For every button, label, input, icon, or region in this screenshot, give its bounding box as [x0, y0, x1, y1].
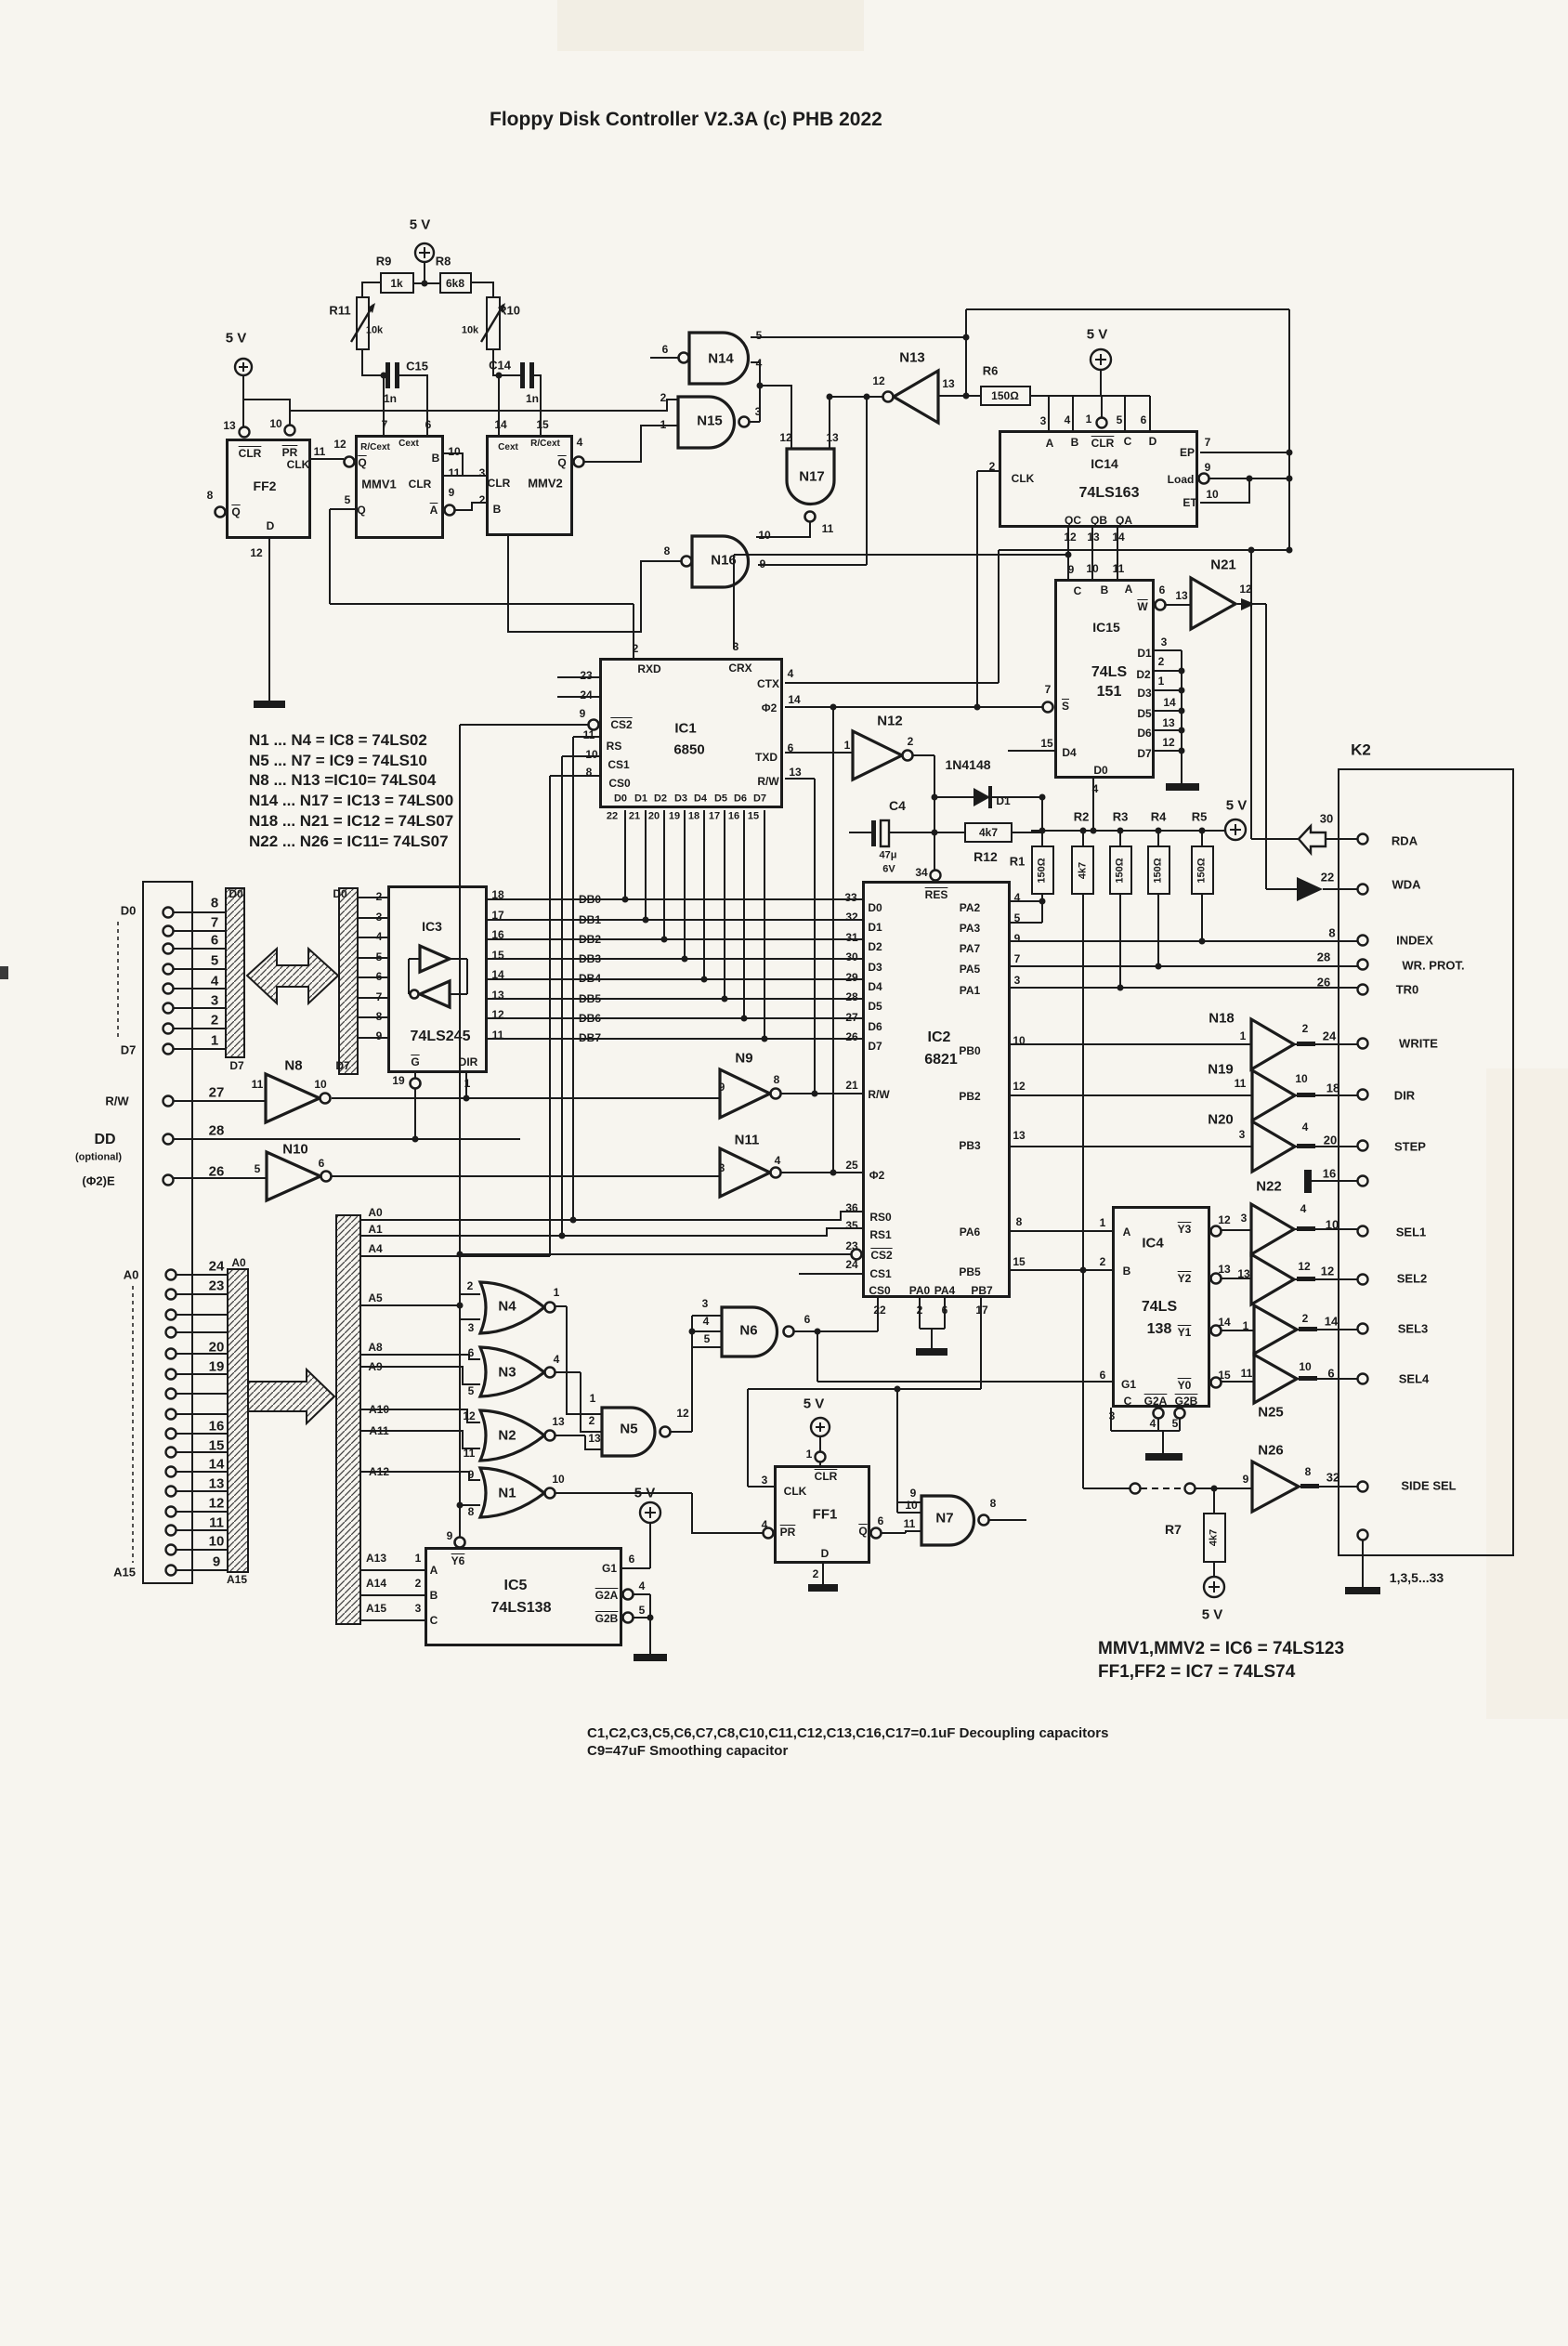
- label-1: 1: [1240, 1030, 1247, 1042]
- diode-d1: [973, 786, 992, 808]
- label-23: 23: [845, 1240, 857, 1252]
- label-qa: QA: [1116, 515, 1132, 526]
- label-32: 32: [845, 911, 857, 923]
- label-3: 3: [1241, 1212, 1248, 1224]
- label-c4: C4: [889, 799, 906, 812]
- label-10: 10: [1295, 1073, 1307, 1084]
- schematic-page: Floppy Disk Controller V2.3A (c) PHB 202…: [0, 0, 1568, 2346]
- label-23: 23: [580, 670, 592, 681]
- label-b: B: [493, 504, 502, 515]
- label-21: 21: [845, 1080, 857, 1091]
- label-n21: N21: [1210, 558, 1236, 572]
- label-pa7: PA7: [960, 943, 980, 954]
- label-d3: D3: [1137, 688, 1151, 699]
- label-n25: N25: [1258, 1406, 1284, 1420]
- label-13: 13: [209, 1477, 225, 1491]
- label-14: 14: [491, 969, 503, 980]
- label-13: 13: [826, 432, 838, 443]
- label-rs: RS: [607, 740, 622, 752]
- label-3: 3: [1161, 636, 1168, 648]
- label-8: 8: [586, 767, 593, 778]
- label-n14: N14: [708, 352, 734, 366]
- label-d0: D0: [121, 905, 137, 917]
- label-n3: N3: [498, 1366, 516, 1380]
- label-ic4: IC4: [1142, 1237, 1163, 1251]
- label-32: 32: [1326, 1472, 1339, 1484]
- label-n17: N17: [799, 470, 825, 484]
- label-d4: D4: [694, 794, 707, 805]
- label-n1: N1: [498, 1487, 516, 1501]
- label-150ω: 150Ω: [1197, 858, 1208, 883]
- label-28: 28: [845, 991, 857, 1003]
- label-5-v: 5 V: [410, 218, 431, 232]
- label-4: 4: [639, 1580, 646, 1592]
- label-n7: N7: [935, 1512, 953, 1526]
- label-6: 6: [468, 1347, 475, 1358]
- label-4: 4: [1014, 892, 1021, 903]
- label-r2: R2: [1074, 811, 1090, 823]
- label-ic2: IC2: [928, 1030, 951, 1045]
- label-1: 1: [844, 740, 851, 751]
- label-11: 11: [1235, 1078, 1247, 1089]
- label-g2a: G2A: [595, 1590, 619, 1601]
- label-1: 1: [660, 419, 667, 430]
- label-8: 8: [207, 490, 214, 501]
- label-r11: R11: [329, 305, 350, 317]
- label-2: 2: [1302, 1023, 1309, 1034]
- label-pa1: PA1: [960, 985, 980, 996]
- label-8: 8: [774, 1074, 780, 1085]
- label-29: 29: [845, 972, 857, 983]
- label-150ω: 150Ω: [1116, 858, 1126, 883]
- label-5: 5: [345, 494, 351, 505]
- label-5-v: 5 V: [226, 332, 247, 346]
- label-2: 2: [989, 461, 996, 472]
- label-1: 1: [1100, 1217, 1106, 1228]
- label-10: 10: [269, 418, 281, 429]
- label-a1: A1: [368, 1224, 382, 1235]
- label-9: 9: [1068, 564, 1075, 575]
- label-4k7: 4k7: [979, 827, 998, 838]
- label-6: 6: [425, 419, 432, 430]
- label-19: 19: [669, 812, 680, 822]
- label-12: 12: [676, 1408, 688, 1419]
- label-13: 13: [552, 1416, 564, 1427]
- label-s: S: [1062, 701, 1069, 712]
- label-24: 24: [209, 1260, 225, 1274]
- label-9: 9: [468, 1469, 475, 1480]
- label-q: Q: [231, 506, 240, 518]
- label-ic15: IC15: [1092, 621, 1120, 634]
- label-c: C: [430, 1615, 438, 1626]
- label-d2: D2: [1136, 669, 1150, 680]
- label-sel4: SEL4: [1399, 1373, 1430, 1385]
- label-tr0: TR0: [1396, 984, 1419, 996]
- label-10k: 10k: [366, 326, 383, 336]
- label-25: 25: [845, 1160, 857, 1171]
- r11-pot-box: [356, 296, 370, 350]
- label-pa6: PA6: [960, 1226, 980, 1238]
- label-txd: TXD: [755, 752, 777, 763]
- label-pa5: PA5: [960, 963, 980, 975]
- label-8: 8: [990, 1498, 997, 1509]
- label-d5: D5: [868, 1001, 882, 1012]
- ic3-74ls245-box: [387, 885, 488, 1073]
- label-9: 9: [449, 487, 455, 498]
- label-pa2: PA2: [960, 902, 980, 913]
- label-3: 3: [479, 467, 486, 478]
- label-36: 36: [845, 1202, 857, 1213]
- label-14: 14: [1218, 1317, 1230, 1328]
- label-4: 4: [756, 358, 763, 369]
- label-rs1: RS1: [869, 1229, 891, 1240]
- label-4: 4: [1300, 1203, 1307, 1214]
- label-d3: D3: [674, 794, 687, 805]
- label-11: 11: [464, 1448, 476, 1459]
- label-74ls: 74LS: [1091, 665, 1127, 680]
- label-4: 4: [762, 1519, 768, 1530]
- label-a: A: [430, 1565, 438, 1576]
- gate-n12: [853, 731, 902, 780]
- label-pr: PR: [282, 447, 298, 458]
- label-74ls245: 74LS245: [411, 1029, 471, 1044]
- label-3: 3: [415, 1603, 422, 1614]
- label-1: 1: [806, 1448, 813, 1460]
- label-a11: A11: [369, 1425, 388, 1436]
- label-1: 1: [211, 1034, 218, 1048]
- label-ic14: IC14: [1091, 457, 1118, 470]
- label-11: 11: [822, 523, 834, 534]
- label-d6: D6: [1137, 727, 1151, 739]
- label-ctx: CTX: [757, 678, 779, 689]
- label-db6: DB6: [579, 1013, 601, 1024]
- label-n12: N12: [877, 714, 903, 728]
- label-9: 9: [1014, 933, 1021, 944]
- label-150ω: 150Ω: [1154, 858, 1164, 883]
- label-r3: R3: [1113, 811, 1129, 823]
- label-2: 2: [467, 1280, 474, 1291]
- label-cs0: CS0: [869, 1285, 890, 1296]
- label-18: 18: [491, 889, 503, 900]
- label-13: 13: [1162, 717, 1174, 728]
- label-a8: A8: [368, 1342, 382, 1353]
- label-22: 22: [1321, 872, 1334, 884]
- label-r-w: R/W: [105, 1095, 128, 1107]
- label-c15: C15: [406, 360, 428, 373]
- label-clr: CLR: [815, 1471, 838, 1482]
- label-d3: D3: [868, 962, 882, 973]
- label-4: 4: [703, 1316, 710, 1327]
- label-a: A: [430, 505, 438, 516]
- label-b: B: [1071, 437, 1079, 448]
- label-11: 11: [209, 1516, 224, 1530]
- label-3: 3: [1239, 1129, 1246, 1140]
- label-a5: A5: [368, 1292, 382, 1304]
- label-res: RES: [925, 889, 948, 900]
- label-n16: N16: [711, 554, 737, 568]
- label-9: 9: [213, 1555, 220, 1569]
- label-10: 10: [552, 1474, 564, 1485]
- label-9: 9: [376, 1030, 383, 1042]
- label-d4: D4: [868, 981, 882, 992]
- label-2: 2: [589, 1415, 595, 1426]
- label-7: 7: [1014, 953, 1021, 964]
- label-8: 8: [376, 1011, 383, 1022]
- label-g2b: G2B: [595, 1613, 619, 1624]
- label-13: 13: [1218, 1264, 1230, 1275]
- label-8: 8: [211, 897, 218, 911]
- label-1n: 1n: [526, 393, 539, 404]
- label-a: A: [1123, 1226, 1131, 1238]
- label-12: 12: [1162, 737, 1174, 748]
- label-pb3: PB3: [959, 1140, 980, 1151]
- label-74ls163: 74LS163: [1079, 486, 1140, 501]
- gate-n20: [1252, 1121, 1295, 1172]
- paper-stain: [557, 0, 864, 51]
- label-d5: D5: [714, 794, 727, 805]
- label-22: 22: [873, 1304, 885, 1316]
- label-10: 10: [905, 1500, 917, 1511]
- label-clk: CLK: [287, 459, 310, 470]
- label-4: 4: [376, 931, 383, 942]
- label-pb5: PB5: [959, 1266, 980, 1278]
- label-10: 10: [1013, 1035, 1025, 1046]
- label-13: 13: [1087, 531, 1099, 543]
- label-13: 13: [1237, 1268, 1249, 1279]
- label-3: 3: [468, 1322, 475, 1333]
- label-d7: D7: [753, 794, 766, 805]
- label-10: 10: [585, 749, 597, 760]
- label-r-w: R/W: [868, 1089, 889, 1100]
- label-12: 12: [250, 547, 262, 558]
- label-ep: EP: [1180, 447, 1195, 458]
- label-d0: D0: [868, 902, 882, 913]
- label-6: 6: [878, 1515, 884, 1527]
- label-5: 5: [756, 330, 763, 341]
- label-rs0: RS0: [869, 1212, 891, 1223]
- label-11: 11: [583, 729, 595, 740]
- label-10: 10: [1206, 489, 1218, 500]
- label-11: 11: [314, 446, 326, 457]
- label-24: 24: [1323, 1030, 1336, 1042]
- label-10: 10: [1299, 1361, 1311, 1372]
- label-wda: WDA: [1392, 879, 1420, 891]
- label-12: 12: [1298, 1261, 1310, 1272]
- gate-n21: [1191, 578, 1235, 629]
- label-n18: N18: [1209, 1012, 1235, 1026]
- label-2: 2: [1158, 656, 1165, 667]
- label-d6: D6: [868, 1021, 882, 1032]
- label-c: C: [1074, 585, 1082, 596]
- label-d4: D4: [1062, 747, 1076, 758]
- label-9: 9: [760, 558, 766, 570]
- label-4k7: 4k7: [1078, 862, 1089, 879]
- label-5: 5: [639, 1605, 646, 1616]
- label-31: 31: [845, 932, 857, 943]
- label-5: 5: [1117, 414, 1123, 426]
- label-g1: G1: [602, 1563, 617, 1574]
- label-13: 13: [942, 378, 954, 389]
- label-d7: D7: [868, 1041, 882, 1052]
- label-a4: A4: [368, 1243, 382, 1254]
- label-6: 6: [942, 1304, 948, 1316]
- label-c14: C14: [489, 360, 511, 372]
- label-clk: CLK: [784, 1486, 807, 1497]
- label-2: 2: [1302, 1313, 1309, 1324]
- label-db3: DB3: [579, 953, 601, 964]
- label-4: 4: [788, 668, 794, 679]
- label-a15: A15: [227, 1574, 247, 1585]
- label-1n4148: 1N4148: [945, 758, 990, 771]
- label-12: 12: [872, 375, 884, 387]
- label-1k: 1k: [390, 278, 402, 289]
- gate-n19: [1252, 1070, 1295, 1121]
- label-b: B: [1101, 584, 1109, 596]
- label-d: D: [821, 1548, 830, 1559]
- label-n13: N13: [899, 351, 925, 365]
- label-30: 30: [845, 951, 857, 963]
- label-3: 3: [733, 641, 739, 652]
- label-r10: R10: [498, 305, 520, 317]
- label-74ls: 74LS: [1142, 1300, 1177, 1315]
- label-1: 1: [1243, 1320, 1249, 1331]
- gate-n22: [1251, 1204, 1294, 1254]
- label-4: 4: [577, 437, 583, 448]
- label-2: 2: [660, 392, 667, 403]
- label-a13: A13: [366, 1553, 386, 1564]
- label-6k8: 6k8: [446, 278, 464, 289]
- label-7: 7: [376, 991, 383, 1003]
- label-26: 26: [845, 1031, 857, 1042]
- label-b: B: [432, 452, 440, 464]
- label-db7: DB7: [579, 1032, 601, 1043]
- cpu-connector-box: [142, 881, 193, 1584]
- label-3: 3: [702, 1298, 709, 1309]
- label-10: 10: [1086, 563, 1098, 574]
- label-mmv2: MMV2: [528, 478, 563, 490]
- label-φ2: Φ2: [869, 1170, 885, 1181]
- label-w: W: [1137, 601, 1147, 612]
- label-17: 17: [975, 1304, 987, 1316]
- label-r4: R4: [1151, 811, 1167, 823]
- label-13: 13: [789, 767, 801, 778]
- label-9: 9: [1205, 462, 1211, 473]
- label-d5: D5: [1137, 708, 1151, 719]
- gate-n25: [1254, 1355, 1297, 1403]
- label-q: Q: [557, 457, 566, 468]
- label-a: A: [1125, 583, 1133, 595]
- label-12: 12: [333, 439, 346, 450]
- label-6: 6: [211, 934, 218, 948]
- data-bus: [226, 888, 358, 1074]
- label-3: 3: [719, 1162, 725, 1173]
- label-qc: QC: [1065, 515, 1081, 526]
- label-r9: R9: [376, 256, 392, 268]
- label-151: 151: [1097, 685, 1122, 700]
- label-6: 6: [376, 971, 383, 982]
- label-19: 19: [392, 1075, 404, 1086]
- label-27: 27: [209, 1086, 225, 1100]
- label-dir: DIR: [1394, 1090, 1415, 1102]
- label-9: 9: [447, 1530, 453, 1541]
- gate-n18: [1251, 1019, 1294, 1069]
- label-side-sel: SIDE SEL: [1401, 1480, 1456, 1492]
- label-n22: N22: [1256, 1180, 1282, 1194]
- label-6v: 6V: [882, 865, 895, 875]
- label-3: 3: [1109, 1410, 1116, 1422]
- label-k2: K2: [1351, 742, 1371, 758]
- label-q: Q: [358, 457, 366, 468]
- label-et: ET: [1183, 497, 1196, 508]
- label-y6: Y6: [451, 1555, 465, 1566]
- label-n19: N19: [1208, 1063, 1234, 1077]
- label-12: 12: [491, 1009, 503, 1020]
- label-pr: PR: [780, 1527, 796, 1538]
- label-g2a: G2A: [1144, 1396, 1168, 1407]
- label-17: 17: [709, 812, 720, 822]
- label-6: 6: [629, 1553, 635, 1565]
- label-ic5: IC5: [504, 1579, 528, 1593]
- label-cs2: CS2: [870, 1250, 892, 1261]
- label-6821: 6821: [924, 1053, 958, 1068]
- rda-arrow: [1299, 826, 1326, 853]
- label-a10: A10: [369, 1404, 389, 1415]
- label-5-v: 5 V: [1202, 1608, 1223, 1622]
- label-14: 14: [1163, 697, 1175, 708]
- label-10: 10: [448, 446, 460, 457]
- label-mmv1: MMV1: [361, 478, 397, 491]
- label-13: 13: [223, 420, 235, 431]
- label-26: 26: [209, 1165, 225, 1179]
- label-3: 3: [211, 994, 218, 1008]
- label--φ2-e: (Φ2)E: [82, 1175, 114, 1187]
- label-cs1: CS1: [869, 1268, 891, 1279]
- label-cs0: CS0: [608, 778, 630, 789]
- label-pa0: PA0: [909, 1285, 930, 1296]
- label-11: 11: [904, 1518, 916, 1529]
- label-24: 24: [845, 1259, 857, 1270]
- label-17: 17: [491, 910, 503, 921]
- label-7: 7: [382, 419, 388, 430]
- gate-n10: [267, 1152, 320, 1200]
- label-10k: 10k: [462, 326, 478, 336]
- label-15: 15: [491, 950, 503, 961]
- label-74ls138: 74LS138: [491, 1601, 552, 1616]
- label-20: 20: [209, 1341, 225, 1355]
- label-sel1: SEL1: [1396, 1226, 1427, 1239]
- label-2: 2: [633, 643, 639, 654]
- label-c: C: [1124, 1396, 1132, 1407]
- label-pb7: PB7: [971, 1285, 992, 1296]
- label-y0: Y0: [1178, 1380, 1192, 1391]
- label-1n: 1n: [384, 393, 397, 404]
- label-7: 7: [211, 916, 218, 930]
- label-pa4: PA4: [934, 1285, 955, 1296]
- label-db5: DB5: [579, 993, 601, 1004]
- label-8: 8: [1328, 927, 1335, 939]
- label-20: 20: [1324, 1134, 1337, 1147]
- gate-n26: [1252, 1461, 1299, 1512]
- label-3: 3: [376, 911, 383, 923]
- label-d1: D1: [868, 922, 882, 933]
- label-6: 6: [319, 1158, 325, 1169]
- label-5-v: 5 V: [634, 1487, 656, 1501]
- label-15: 15: [1013, 1256, 1025, 1267]
- label-18: 18: [1326, 1082, 1339, 1094]
- label-ic3: IC3: [422, 920, 442, 933]
- label-d6: D6: [734, 794, 747, 805]
- label-a9: A9: [368, 1361, 382, 1372]
